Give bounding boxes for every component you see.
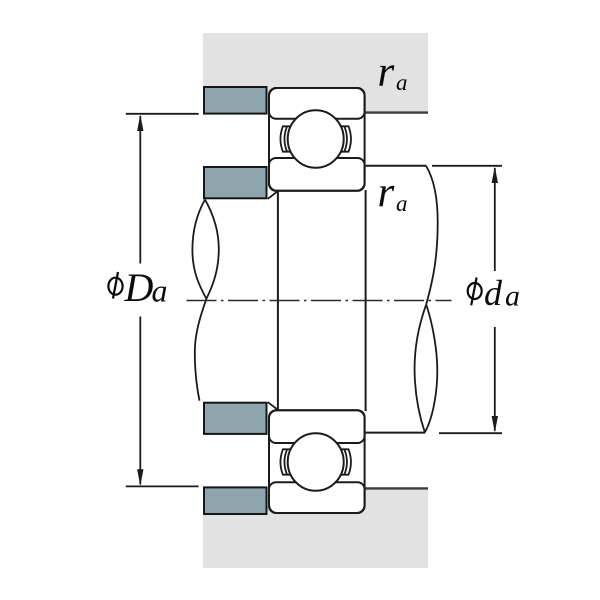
svg-text:a: a (152, 272, 168, 308)
svg-text:d: d (484, 273, 503, 313)
svg-text:a: a (396, 191, 408, 216)
svg-text:r: r (378, 49, 395, 96)
svg-text:r: r (378, 170, 395, 217)
svg-text:D: D (124, 265, 154, 310)
svg-text:a: a (505, 280, 520, 313)
svg-text:a: a (396, 70, 408, 95)
